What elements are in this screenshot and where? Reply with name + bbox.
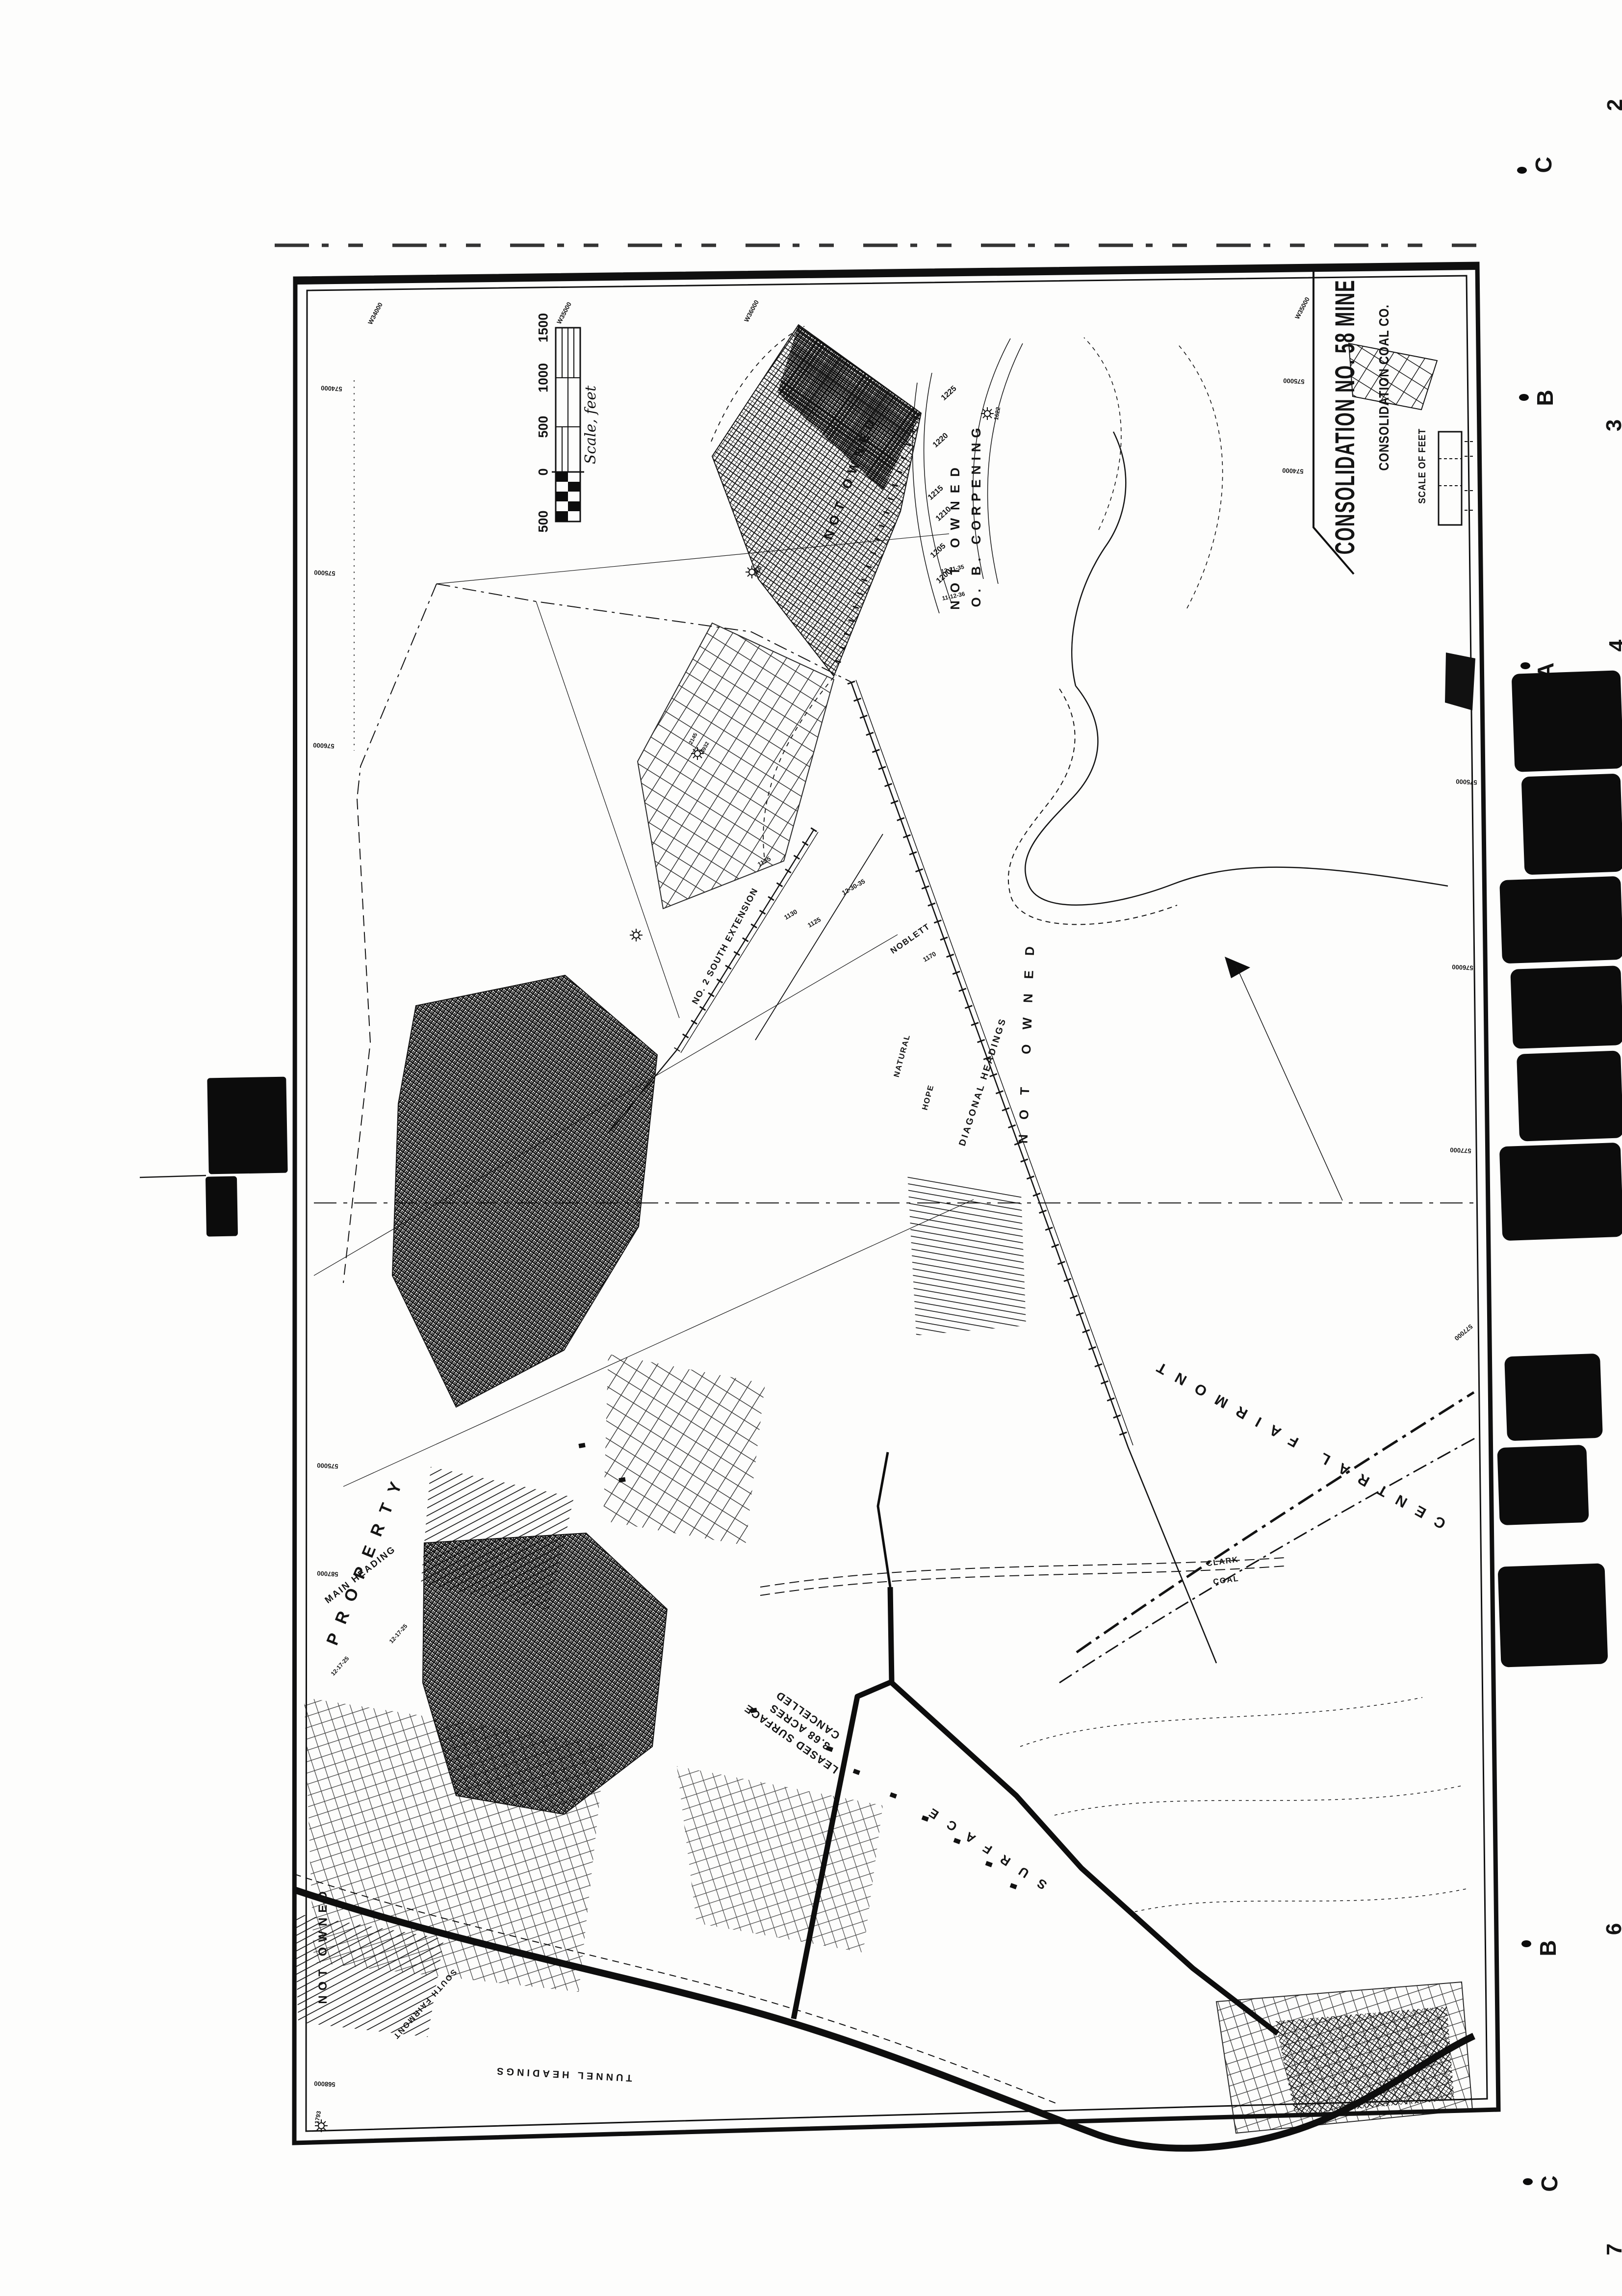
scale-tick-1000: 1000	[537, 363, 550, 392]
punch-dot-icon	[1521, 1940, 1531, 1947]
edge-number-2: 2	[1604, 99, 1622, 111]
punch-dot-icon	[1519, 394, 1529, 401]
redaction-block	[1510, 965, 1622, 1049]
punch-dot-icon	[1523, 2178, 1533, 2185]
redaction-block	[1497, 1445, 1589, 1525]
edge-number-7: 7	[1604, 2244, 1622, 2255]
redaction-block	[1497, 1563, 1608, 1667]
registration-letter-b2: B	[1537, 1940, 1559, 1956]
edge-number-4: 4	[1606, 640, 1622, 652]
grid-coord-right: 577000	[1450, 1147, 1471, 1154]
registration-letter-c2: C	[1538, 2175, 1561, 2192]
redaction-block	[1521, 774, 1622, 875]
grid-coord-right: 576000	[1452, 964, 1473, 971]
scale-caption: Scale, feet	[584, 386, 598, 464]
label-not-owned-4: NOT OWNED	[317, 1886, 329, 2004]
mine-name: CONSOLIDATION NO. 58 MINE	[1331, 280, 1358, 555]
north-arrow-icon	[1225, 957, 1342, 1200]
mine-workings	[294, 325, 1475, 2133]
redaction-block	[1512, 670, 1622, 772]
scale-bar-graphic	[552, 328, 584, 522]
redaction-block	[1517, 1050, 1622, 1141]
scale-tick-500b: 500	[537, 510, 550, 532]
redaction-block	[1504, 1354, 1603, 1441]
punch-dot-icon	[1520, 662, 1530, 669]
margin-tab-block	[207, 1077, 287, 1174]
scale-tick-0: 0	[537, 468, 550, 475]
grid-coord-left: 575000	[314, 569, 335, 576]
railroad	[760, 1392, 1476, 1683]
heavy-property-line	[794, 1452, 1278, 2034]
punch-dot-icon	[1517, 167, 1527, 174]
redaction-block	[1499, 1143, 1622, 1241]
registration-letter-b1: B	[1534, 390, 1556, 406]
label-not-owned-2: NOT OWNED	[949, 460, 961, 610]
grid-coord-inner: 574000	[1282, 467, 1304, 474]
scanned-mine-map-page: CONSOLIDATION NO. 58 MINE CONSOLIDATION …	[0, 0, 1622, 2296]
edge-number-6: 6	[1603, 1923, 1622, 1935]
scale-of-feet-heading: SCALE OF FEET	[1417, 428, 1427, 504]
grid-coord-left: 574000	[321, 385, 342, 392]
sun-symbol-icon	[630, 929, 643, 941]
scale-tick-1500: 1500	[537, 313, 550, 342]
edge-number-3: 3	[1603, 419, 1622, 431]
label-owner-corpening: O. B. CORPENING	[970, 423, 982, 607]
registration-letter-c1: C	[1532, 157, 1555, 173]
company-name: CONSOLIDATION COAL CO.	[1377, 304, 1391, 470]
grid-coord-left: 587000	[317, 1570, 338, 1577]
grid-coord-left: 568000	[314, 2080, 335, 2087]
grid-coord-inner: 575000	[1283, 377, 1305, 385]
grid-coord-left: 575000	[317, 1462, 338, 1469]
redaction-block	[1499, 876, 1622, 964]
grid-coord-left: 576000	[313, 742, 335, 749]
scale-tick-500: 500	[537, 416, 550, 438]
grid-coord-right: 575000	[1456, 778, 1477, 785]
margin-tab-block	[206, 1176, 238, 1236]
